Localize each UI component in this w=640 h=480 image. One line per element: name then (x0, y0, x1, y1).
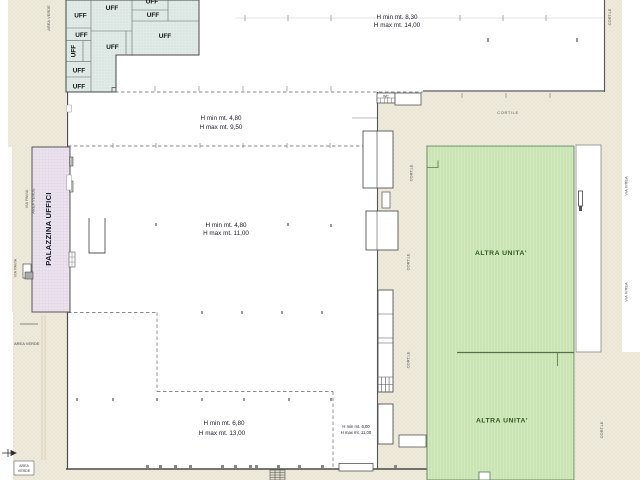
svg-text:AREA: AREA (19, 464, 29, 468)
svg-text:ALTRA UNITA': ALTRA UNITA' (475, 250, 527, 257)
svg-text:UFF: UFF (73, 68, 86, 75)
svg-text:UFF: UFF (159, 33, 172, 40)
svg-text:H max mt. 14,00: H max mt. 14,00 (374, 22, 421, 29)
svg-text:CORT.LE: CORT.LE (409, 164, 414, 181)
svg-text:WC: WC (383, 95, 389, 99)
svg-text:AREA VERDE: AREA VERDE (31, 188, 36, 214)
svg-text:H max mt. 9,50: H max mt. 9,50 (200, 124, 243, 131)
svg-text:H min mt. 8,30: H min mt. 8,30 (377, 14, 418, 21)
svg-text:H max mt. 11,00: H max mt. 11,00 (341, 430, 372, 435)
svg-text:H max mt. 13,00: H max mt. 13,00 (199, 430, 246, 437)
svg-text:UFF: UFF (106, 5, 119, 12)
svg-text:CORTILE: CORTILE (497, 110, 518, 115)
svg-text:H min mt. 4,80: H min mt. 4,80 (206, 222, 247, 229)
svg-text:H min mt. 6,80: H min mt. 6,80 (204, 420, 245, 427)
svg-text:PALAZZINA UFFICI: PALAZZINA UFFICI (44, 192, 53, 266)
svg-text:AREA VERDE: AREA VERDE (46, 5, 51, 31)
svg-text:VERDE: VERDE (18, 469, 31, 473)
svg-text:CORT.LE: CORT.LE (607, 8, 612, 25)
svg-text:H min mt. 6,00: H min mt. 6,00 (342, 424, 370, 429)
svg-text:UFF: UFF (147, 12, 160, 19)
svg-text:UFF: UFF (74, 13, 87, 20)
svg-text:H min mt. 4,80: H min mt. 4,80 (201, 115, 242, 122)
svg-text:UFF: UFF (146, 0, 159, 6)
svg-text:VIA PAVIA: VIA PAVIA (24, 189, 29, 208)
svg-text:CORT.LE: CORT.LE (599, 421, 604, 438)
svg-text:UFF: UFF (71, 45, 78, 58)
svg-text:UFF: UFF (73, 84, 86, 91)
svg-text:H max mt. 11,00: H max mt. 11,00 (203, 230, 249, 237)
svg-text:VIA IVREA: VIA IVREA (624, 176, 629, 196)
svg-text:VIA PAVIA: VIA PAVIA (13, 258, 18, 277)
svg-text:UFF: UFF (75, 32, 88, 39)
svg-text:UFF: UFF (106, 44, 119, 51)
svg-text:AREA VERDE: AREA VERDE (14, 341, 40, 346)
svg-text:CORT.LE: CORT.LE (406, 351, 411, 368)
svg-text:CORT.LE: CORT.LE (406, 253, 411, 270)
svg-text:VIA IVREA: VIA IVREA (624, 282, 629, 302)
svg-text:ALTRA UNITA': ALTRA UNITA' (476, 418, 528, 425)
